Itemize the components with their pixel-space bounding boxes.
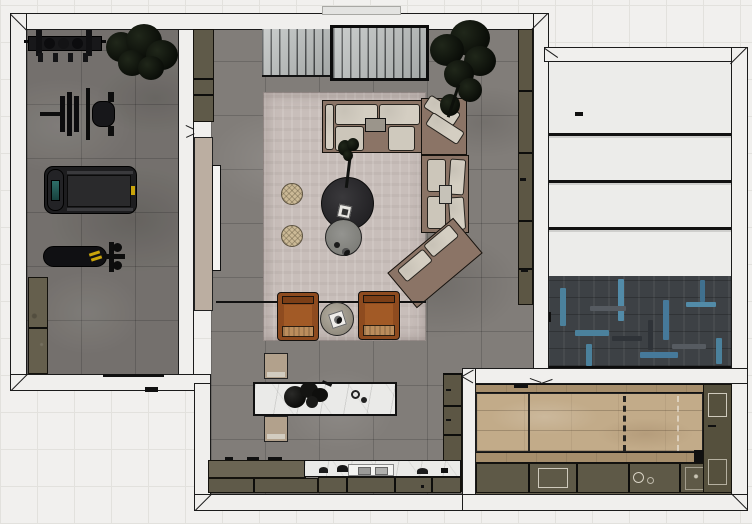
garage-door-seam <box>548 180 731 183</box>
game-table[interactable] <box>476 393 703 452</box>
island-bench-top[interactable] <box>264 353 288 379</box>
pouf-bottom[interactable] <box>281 225 303 247</box>
counter-item <box>225 457 233 460</box>
cabinet-knob <box>633 472 644 483</box>
living-plant[interactable] <box>424 20 498 122</box>
door-stop-mark <box>145 387 158 392</box>
pouf-top[interactable] <box>281 183 303 205</box>
counter-marble[interactable] <box>304 460 461 477</box>
blue-plank <box>686 302 716 307</box>
table-decor-dot <box>342 248 350 256</box>
wall-games-left <box>462 368 476 511</box>
wardrobe-slatted[interactable] <box>262 29 330 77</box>
sofa-armrest-tray <box>439 185 452 204</box>
garage-door[interactable] <box>548 62 731 276</box>
floorplan-canvas <box>0 0 752 524</box>
games-lower-cabinets[interactable] <box>476 463 732 493</box>
island-item <box>351 390 360 399</box>
sliding-door[interactable] <box>212 165 221 271</box>
blue-plank <box>618 279 624 321</box>
vase-branches <box>338 138 360 188</box>
blue-plank <box>716 338 722 364</box>
blue-plank <box>575 330 609 336</box>
armchair-left[interactable] <box>277 292 319 341</box>
wall-gym-divider <box>178 29 194 375</box>
garage-herringbone-floor <box>548 276 731 368</box>
table-centre-line <box>623 396 626 451</box>
counter-left[interactable] <box>208 460 306 478</box>
blue-plank <box>560 288 566 326</box>
cooktop <box>348 464 394 476</box>
table-decor-dot <box>334 242 340 248</box>
island-bench-bottom[interactable] <box>264 416 288 442</box>
table-side-line <box>677 396 679 451</box>
blue-plank <box>586 344 592 366</box>
armchair-right[interactable] <box>358 291 400 340</box>
gym-cabinet[interactable] <box>28 277 48 374</box>
blue-plank <box>700 280 705 302</box>
sofa-tray <box>365 118 386 132</box>
treadmill[interactable] <box>44 166 137 214</box>
bench-press-station[interactable] <box>40 88 115 140</box>
table-book <box>337 204 352 219</box>
wall-left <box>10 13 27 391</box>
door-handle-mark <box>575 112 583 116</box>
top-niche <box>322 6 401 15</box>
base-cabinet-right[interactable] <box>318 477 461 493</box>
wall-living-right <box>533 13 549 384</box>
wall-bottom-right <box>462 494 748 511</box>
games-side-cabinet[interactable] <box>703 384 732 493</box>
counter-item <box>247 457 259 460</box>
cabinet-knob <box>647 477 654 484</box>
dark-plank <box>612 336 642 341</box>
wall-right <box>731 47 748 511</box>
gym-plant[interactable] <box>104 24 180 82</box>
wall-games-top <box>462 368 748 384</box>
counter-item <box>268 457 282 460</box>
tan-wall-panel <box>194 137 213 311</box>
garage-door-seam <box>548 133 731 136</box>
drawer-outline <box>538 468 568 488</box>
garage-door-seam <box>548 227 731 230</box>
wall-bottom-center <box>194 494 475 511</box>
grey-plank <box>590 306 626 311</box>
wall-gym-bottom <box>10 374 211 391</box>
base-cabinet-left[interactable] <box>208 478 318 493</box>
island-item <box>361 397 367 403</box>
wall-garage-top <box>544 47 748 62</box>
treadmill-accent <box>131 186 135 195</box>
grey-plank <box>672 344 706 349</box>
table-handle <box>514 384 528 388</box>
blue-plank <box>663 300 669 340</box>
game-table-bottom-rail <box>476 452 703 463</box>
sofa-right-section[interactable] <box>421 155 469 233</box>
dumbbell-rack[interactable] <box>28 30 102 62</box>
side-table[interactable] <box>320 302 354 336</box>
island-flowers <box>280 380 336 416</box>
treadmill-screen <box>51 180 60 201</box>
blue-plank <box>640 352 678 358</box>
weight-bench[interactable] <box>43 242 125 272</box>
wall-shelf-unit[interactable] <box>518 29 533 305</box>
wardrobe-framed[interactable] <box>330 25 429 81</box>
living-wall-cabinet[interactable] <box>193 29 214 122</box>
wall-mark <box>103 374 164 377</box>
dark-plank <box>648 320 653 350</box>
